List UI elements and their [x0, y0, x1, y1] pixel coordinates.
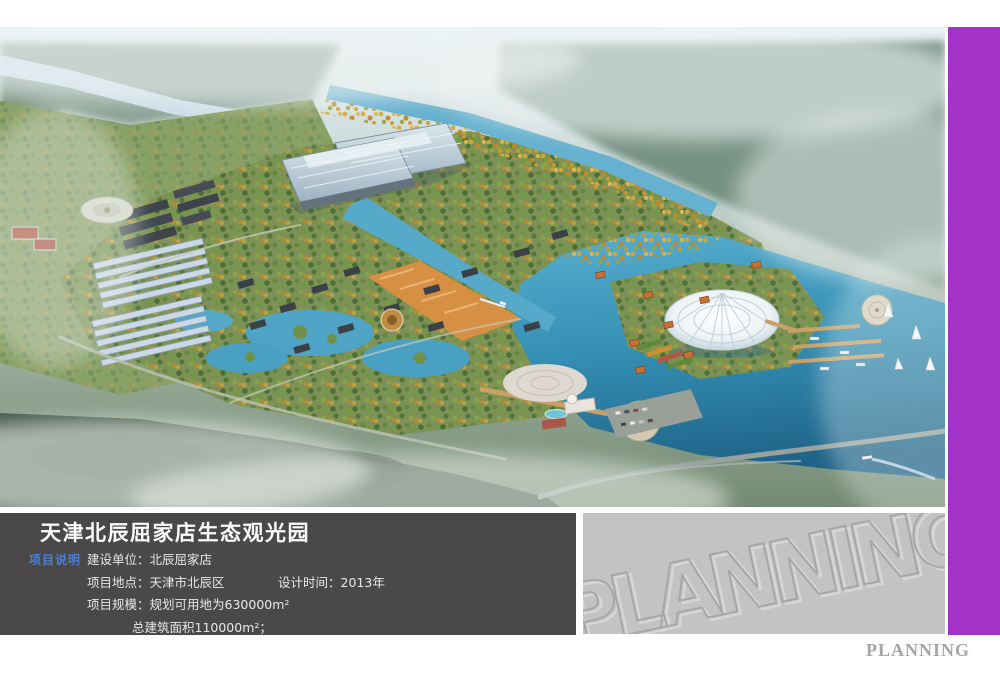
detail-label: 项目规模： [87, 597, 150, 612]
project-title: 天津北辰屈家店生态观光园 [40, 520, 576, 546]
planning-footer-text: PLANNING [866, 640, 962, 661]
detail-value: 2013年 [341, 575, 385, 590]
aerial-rendering-svg [0, 27, 945, 507]
detail-row-location: 项目地点：天津市北辰区 设计时间：2013年 [87, 572, 576, 595]
round-pavilion [381, 309, 403, 331]
aerial-rendering [0, 27, 945, 507]
purple-side-stripe [948, 27, 1000, 635]
detail-row-design-time: 设计时间：2013年 [278, 572, 385, 595]
detail-row-owner: 建设单位：北辰屈家店 [87, 549, 576, 572]
presentation-board: 天津北辰屈家店生态观光园 项目说明 建设单位：北辰屈家店 项目地点：天津市北辰区… [0, 0, 1000, 678]
planning-watermark-panel: PLANNING PLANNING [583, 513, 945, 634]
glass-dome [665, 290, 779, 350]
detail-row-scale: 项目规模：规划可用地为630000m² [87, 594, 576, 617]
project-detail-rows: 建设单位：北辰屈家店 项目地点：天津市北辰区 设计时间：2013年 项目规模：规… [87, 549, 576, 635]
project-info-panel: 天津北辰屈家店生态观光园 项目说明 建设单位：北辰屈家店 项目地点：天津市北辰区… [0, 513, 576, 635]
detail-value: 天津市北辰区 [150, 575, 225, 590]
detail-value: 北辰屈家店 [150, 552, 213, 567]
detail-row-floor-area: 总建筑面积110000m²； [87, 617, 576, 636]
planning-watermark-svg: PLANNING PLANNING [583, 513, 945, 634]
detail-label: 设计时间： [278, 575, 341, 590]
detail-label: 项目地点： [87, 575, 150, 590]
watermark-text: PLANNING [583, 513, 945, 634]
detail-value: 规划可用地为630000m² [150, 597, 290, 612]
detail-label: 建设单位： [87, 552, 150, 567]
section-label: 项目说明 [29, 551, 81, 568]
detail-value: 总建筑面积110000m²； [132, 620, 272, 635]
